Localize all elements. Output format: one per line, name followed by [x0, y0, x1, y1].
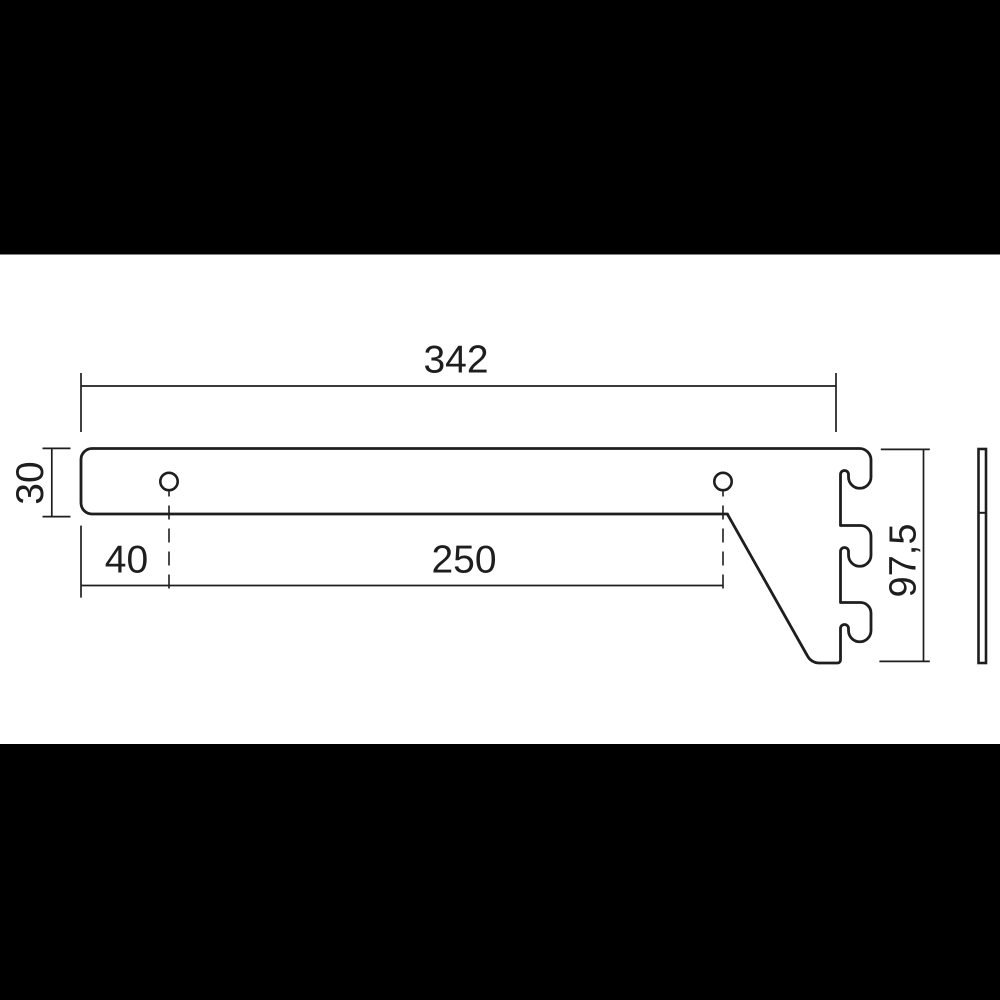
svg-text:97,5: 97,5	[883, 524, 925, 598]
svg-text:342: 342	[423, 339, 488, 382]
svg-text:30: 30	[9, 461, 52, 504]
svg-text:40: 40	[105, 539, 148, 582]
svg-text:250: 250	[431, 539, 496, 582]
